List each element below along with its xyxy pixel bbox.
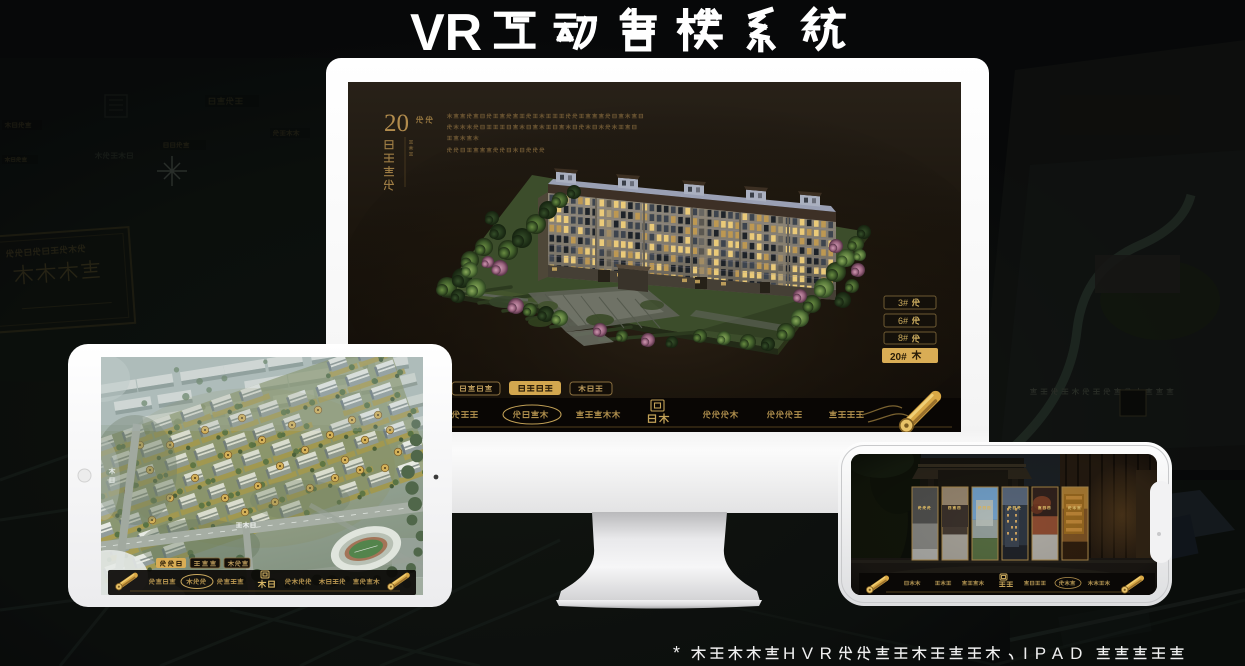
svg-text:20: 20	[384, 110, 409, 137]
svg-text:VR: VR	[410, 4, 482, 62]
svg-text:20#: 20#	[890, 352, 907, 363]
svg-text:8#: 8#	[898, 333, 908, 343]
svg-text:IPAD: IPAD	[1023, 644, 1089, 663]
svg-text:HVR: HVR	[783, 644, 838, 663]
svg-text:3#: 3#	[898, 298, 908, 308]
svg-text:6#: 6#	[898, 316, 908, 326]
svg-text:*: *	[673, 643, 680, 663]
